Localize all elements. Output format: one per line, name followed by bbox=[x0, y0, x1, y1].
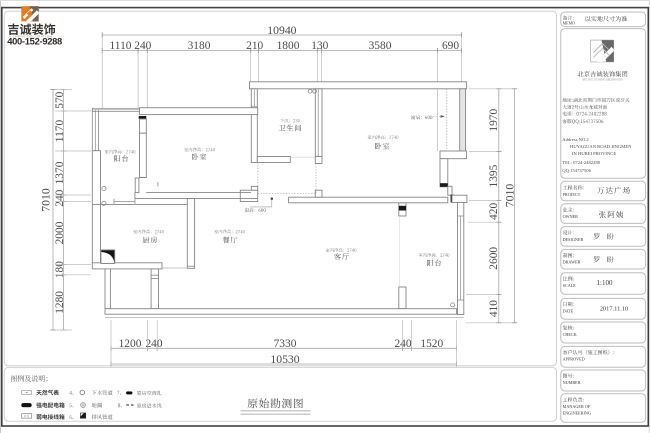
svg-text:1110: 1110 bbox=[110, 40, 132, 52]
svg-text:ENGINEERING: ENGINEERING bbox=[563, 410, 591, 415]
svg-text:APPROVED: APPROVED bbox=[563, 357, 585, 362]
svg-text:DRAWER: DRAWER bbox=[563, 260, 581, 265]
svg-text:CHECK: CHECK bbox=[563, 332, 577, 337]
svg-text:210: 210 bbox=[246, 40, 263, 52]
svg-text:MANAGER OF: MANAGER OF bbox=[563, 404, 591, 409]
svg-text:2000: 2000 bbox=[54, 221, 66, 244]
svg-text:HUYAGUAN ROAD JINGMEN: HUYAGUAN ROAD JINGMEN bbox=[570, 144, 632, 149]
svg-text:240: 240 bbox=[394, 338, 411, 350]
svg-text:10940: 10940 bbox=[267, 24, 296, 37]
svg-text:NUMBER: NUMBER bbox=[563, 380, 581, 385]
svg-text:180: 180 bbox=[54, 261, 66, 278]
svg-text:570: 570 bbox=[54, 91, 66, 108]
svg-text:1:100: 1:100 bbox=[597, 279, 613, 287]
svg-text:400-152-9288: 400-152-9288 bbox=[7, 36, 62, 47]
svg-text:7330: 7330 bbox=[274, 338, 297, 350]
svg-text:7010: 7010 bbox=[39, 188, 52, 212]
svg-text:240: 240 bbox=[54, 189, 66, 206]
svg-text:BEI JING JI CHENG DECORATION: BEI JING JI CHENG DECORATION bbox=[583, 79, 623, 82]
svg-text:10530: 10530 bbox=[270, 353, 299, 366]
svg-text:130: 130 bbox=[311, 40, 328, 52]
svg-text:7010: 7010 bbox=[504, 184, 517, 208]
svg-text:2600: 2600 bbox=[488, 247, 500, 270]
svg-text:240: 240 bbox=[134, 40, 151, 52]
svg-text:1280: 1280 bbox=[54, 291, 66, 314]
svg-text:1395: 1395 bbox=[488, 164, 500, 187]
svg-text:1520: 1520 bbox=[420, 338, 443, 350]
svg-text:1970: 1970 bbox=[488, 109, 500, 132]
svg-text:Address:NO.2: Address:NO.2 bbox=[562, 137, 589, 142]
svg-text:OWNER: OWNER bbox=[563, 214, 579, 219]
svg-text:1800: 1800 bbox=[277, 40, 300, 52]
svg-text:MEMO: MEMO bbox=[563, 21, 576, 26]
svg-text:1370: 1370 bbox=[54, 161, 66, 184]
svg-text:3180: 3180 bbox=[188, 40, 211, 52]
svg-text:SCALE: SCALE bbox=[563, 283, 577, 288]
svg-text:410: 410 bbox=[488, 300, 500, 317]
svg-text:3580: 3580 bbox=[369, 40, 392, 52]
svg-text:IN HUBEI PROVINCE: IN HUBEI PROVINCE bbox=[572, 151, 616, 156]
svg-text:PROJECT: PROJECT bbox=[563, 192, 581, 197]
svg-text:240: 240 bbox=[145, 338, 162, 350]
svg-text:1170: 1170 bbox=[54, 120, 66, 143]
svg-text:TEL: 0724-2482288: TEL: 0724-2482288 bbox=[562, 160, 600, 165]
svg-text:690: 690 bbox=[442, 40, 459, 52]
svg-text:QQ:154737506: QQ:154737506 bbox=[562, 168, 591, 173]
svg-text:DESIGNER: DESIGNER bbox=[563, 237, 584, 242]
svg-text:1200: 1200 bbox=[119, 338, 142, 350]
svg-text:420: 420 bbox=[488, 203, 500, 220]
svg-text:2017.11.10: 2017.11.10 bbox=[600, 306, 629, 313]
svg-text:DATE: DATE bbox=[563, 308, 574, 313]
